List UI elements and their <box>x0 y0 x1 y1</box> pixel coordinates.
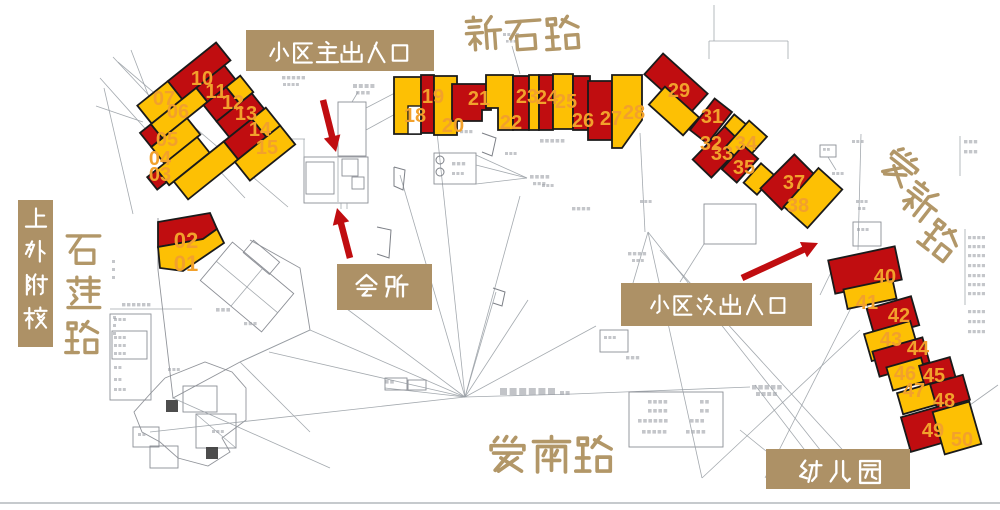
svg-text:31: 31 <box>701 106 723 128</box>
svg-text:18: 18 <box>404 105 426 127</box>
svg-text:02: 02 <box>174 228 198 253</box>
svg-text:49: 49 <box>922 420 944 442</box>
svg-text:34: 34 <box>735 133 758 155</box>
svg-text:22: 22 <box>500 112 522 134</box>
svg-text:05: 05 <box>156 129 178 151</box>
svg-text:38: 38 <box>787 195 809 217</box>
svg-text:20: 20 <box>442 115 464 137</box>
svg-text:42: 42 <box>888 305 910 327</box>
svg-text:21: 21 <box>468 88 490 110</box>
svg-text:41: 41 <box>856 292 878 314</box>
svg-text:44: 44 <box>907 338 930 360</box>
svg-text:50: 50 <box>951 429 973 451</box>
svg-text:37: 37 <box>783 172 805 194</box>
svg-text:43: 43 <box>880 329 902 351</box>
svg-text:07: 07 <box>153 88 175 110</box>
svg-text:27: 27 <box>600 108 622 130</box>
svg-text:33: 33 <box>711 143 733 165</box>
svg-text:28: 28 <box>623 102 645 124</box>
svg-text:04: 04 <box>149 148 172 170</box>
svg-text:01: 01 <box>174 251 198 276</box>
svg-text:29: 29 <box>668 80 690 102</box>
svg-text:35: 35 <box>733 157 755 179</box>
svg-text:40: 40 <box>874 266 896 288</box>
svg-text:23: 23 <box>516 86 538 108</box>
svg-text:48: 48 <box>933 390 955 412</box>
svg-text:26: 26 <box>572 110 594 132</box>
svg-text:47: 47 <box>903 380 925 402</box>
svg-text:15: 15 <box>256 137 278 159</box>
svg-text:45: 45 <box>923 365 945 387</box>
svg-text:19: 19 <box>422 86 444 108</box>
